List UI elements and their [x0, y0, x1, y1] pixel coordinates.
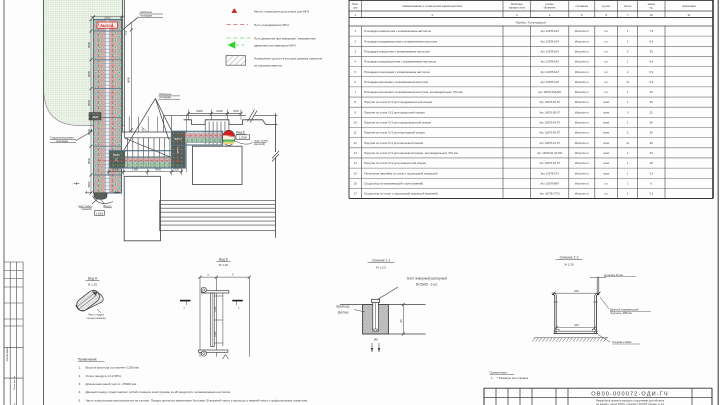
svg-text:3.: 3.: [79, 382, 82, 386]
svg-text:Поручни из стали Ст3 для предп: Поручни из стали Ст3 для предповоротной …: [364, 121, 431, 125]
svg-text:Сход/съезд из стали с порошков: Сход/съезд из стали с порошковой покраск…: [364, 192, 438, 196]
svg-text:примечание: примечание: [682, 5, 697, 8]
svg-text:(Бетон): (Бетон): [338, 311, 349, 315]
svg-text:Примечания:: Примечания:: [78, 357, 97, 361]
svg-text:Вид А: Вид А: [104, 204, 112, 208]
svg-text:Тактильная наклейка из стали с: Тактильная наклейка из стали с порошково…: [364, 171, 438, 175]
svg-text:площадки: площадки: [159, 96, 172, 99]
svg-text:комп: комп: [603, 111, 609, 114]
svg-text:движения при эвакуации МГН: движения при эвакуации МГН: [254, 43, 296, 47]
svg-text:Пози-: Пози-: [352, 3, 359, 6]
svg-text:М 1:2,5: М 1:2,5: [376, 265, 386, 269]
svg-text:площадка: площадка: [140, 14, 153, 17]
svg-text:поставщик: поставщик: [576, 5, 589, 8]
svg-text:Часть конструкции располагаетс: Часть конструкции располагается на склон…: [86, 398, 309, 402]
svg-text:1000*: 1000*: [214, 306, 217, 312]
svg-text:В/15х65 - 3 шт.: В/15х65 - 3 шт.: [416, 283, 438, 287]
svg-text:Согласовано: Согласовано: [6, 346, 9, 361]
svg-text:11: 11: [688, 13, 691, 17]
svg-text:ед.изм.: ед.изм.: [602, 5, 611, 8]
svg-text:комп: комп: [603, 172, 609, 175]
svg-text:* Размеры для справок.: * Размеры для справок.: [497, 376, 529, 380]
svg-text:Часть схода/о: Часть схода/о: [88, 314, 105, 317]
svg-text:Площадка предповоротная с алюм: Площадка предповоротная с алюминиевым на…: [364, 60, 436, 64]
svg-text:шт.: шт.: [604, 91, 608, 94]
svg-text:парового поля: парового поля: [509, 7, 526, 10]
svg-text:Вид Б: Вид Б: [236, 130, 244, 134]
svg-text:Наименование и техническая хар: Наименование и техническая характеристик…: [402, 4, 462, 8]
svg-text:комп: комп: [603, 132, 609, 135]
svg-text:не рассматривается: не рассматривается: [254, 63, 283, 67]
svg-text:Площадка переходная с алюминие: Площадка переходная с алюминиевым настил…: [364, 70, 430, 74]
svg-text:Поручни из стали Ст3 для перех: Поручни из стали Ст3 для переходной секц…: [364, 131, 425, 135]
svg-text:Высота крыльца составляет 1100: Высота крыльца составляет 1100 мм.: [86, 366, 140, 370]
svg-text:Поручни из стали Ст3 для повор: Поручни из стали Ст3 для поворотной секц…: [364, 110, 425, 114]
svg-text:5400: 5400: [196, 109, 203, 113]
svg-text:ВЫХОД: ВЫХОД: [100, 24, 114, 28]
svg-text:Поручни из стали Ст3 для разво: Поручни из стали Ст3 для разворотной сек…: [364, 161, 426, 165]
svg-text:Площадка предразворотная с алю: Площадка предразворотная с алюминиевым н…: [364, 39, 437, 43]
svg-text:Болт анкерный распорный: Болт анкерный распорный: [407, 277, 447, 281]
svg-text:комп: комп: [603, 101, 609, 104]
svg-text:1000*: 1000*: [214, 331, 217, 337]
svg-text:Поручни из стали Ст3 для накло: Поручни из стали Ст3 для наклонной секци…: [364, 151, 458, 155]
svg-text:2.: 2.: [79, 374, 82, 378]
svg-text:Примечание:: Примечание:: [490, 371, 508, 375]
svg-text:Прибор: "Конструкции": Прибор: "Конструкции": [516, 21, 547, 25]
svg-text:масса: масса: [648, 3, 656, 6]
svg-text:Гидроизоляционная: Гидроизоляционная: [50, 137, 74, 140]
svg-text:5.: 5.: [79, 398, 82, 402]
svg-text:Ø8: Ø8: [374, 338, 378, 342]
svg-text:Площадка наклонная с алюминиев: Площадка наклонная с алюминиевым настило…: [364, 80, 428, 84]
svg-text:500: 500: [233, 109, 238, 113]
svg-text:Путь передвижения МГН: Путь передвижения МГН: [254, 23, 289, 27]
svg-text:Места, помещения доступные для: Места, помещения доступные для МГН: [254, 10, 309, 14]
svg-text:сход / съезд: сход / съезд: [254, 140, 269, 143]
svg-text:1:2500: 1:2500: [96, 212, 104, 215]
svg-text:Помещения, доступ в которые да: Помещения, доступ в которые данным проек…: [254, 57, 322, 61]
svg-text:кол-во: кол-во: [624, 5, 632, 8]
svg-text:комп: комп: [603, 152, 609, 155]
svg-text:Величина: Величина: [511, 3, 523, 6]
svg-text:ед.: ед.: [650, 7, 654, 10]
svg-text:ПН8: ПН8: [92, 115, 98, 119]
svg-text:шт.: шт.: [604, 81, 608, 84]
svg-text:обозначен.: обозначен.: [544, 7, 557, 10]
svg-text:Поручни из стали Ст3 для предр: Поручни из стали Ст3 для предразворотной…: [364, 100, 433, 104]
svg-text:Путь движения при эвакуации, н: Путь движения при эвакуации, направление: [254, 36, 316, 40]
svg-text:М 1:30: М 1:30: [564, 262, 574, 266]
svg-text:(нижний): (нижний): [82, 208, 92, 211]
svg-text:Сечение 1-1: Сечение 1-1: [372, 259, 391, 263]
svg-text:Площадка поворотная с алюминие: Площадка поворотная с алюминиевым настил…: [364, 49, 430, 53]
svg-text:М 1:25: М 1:25: [88, 283, 98, 287]
svg-text:шт.: шт.: [604, 193, 608, 196]
svg-text:4.: 4.: [79, 390, 82, 394]
svg-text:прокладка: прокладка: [56, 140, 69, 143]
svg-text:1.: 1.: [79, 366, 82, 370]
svg-text:ция: ция: [353, 7, 358, 10]
svg-text:Крыльцо: Крыльцо: [336, 305, 349, 309]
svg-text:шт.: шт.: [604, 61, 608, 64]
svg-text:1.: 1.: [491, 376, 494, 380]
svg-text:комп: комп: [603, 142, 609, 145]
svg-text:шт.: шт.: [604, 40, 608, 43]
svg-text:Сечение 2-2: Сечение 2-2: [560, 256, 579, 260]
svg-text:условн.: условн.: [545, 3, 554, 6]
svg-text:шт.: шт.: [604, 71, 608, 74]
svg-text:шт.: шт.: [604, 30, 608, 33]
svg-text:съезда (нижняя): съезда (нижняя): [87, 317, 106, 320]
svg-text:Поручни из стали Ст3 для накло: Поручни из стали Ст3 для наклонной секци…: [364, 141, 424, 145]
svg-text:Уклон пандуса 1:12 (8%).: Уклон пандуса 1:12 (8%).: [86, 374, 122, 378]
svg-text:10: 10: [650, 13, 654, 17]
svg-text:ОВ00-000072-ОДИ-ГЧ: ОВ00-000072-ОДИ-ГЧ: [591, 391, 669, 397]
svg-text:ВМУ2: ВМУ2: [113, 154, 120, 157]
svg-text:(верхний): (верхний): [254, 143, 265, 146]
svg-text:сход / съезд: сход / съезд: [78, 205, 92, 208]
svg-text:2560: 2560: [104, 15, 111, 19]
svg-text:П×3: П×3: [125, 30, 128, 35]
svg-text:комп: комп: [603, 162, 609, 165]
svg-text:Вид А: Вид А: [88, 277, 98, 281]
svg-text:Площадка разворотная с алюмини: Площадка разворотная с алюминиевым насти…: [364, 29, 431, 33]
svg-text:1195: 1195: [216, 109, 223, 113]
svg-text:Данный пандус представляет соб: Данный пандус представляет собой сложную…: [86, 390, 232, 394]
svg-text:комп: комп: [603, 122, 609, 125]
svg-text:М 1:20: М 1:20: [219, 263, 229, 267]
svg-text:шт.: шт.: [604, 50, 608, 53]
svg-text:Площадка наклонная с алюминиев: Площадка наклонная с алюминиевым настило…: [364, 90, 463, 94]
svg-text:Длина наклонной части - 25300: Длина наклонной части - 25300 мм.: [86, 382, 138, 386]
svg-text:Сход/съезд из нержавеющей стал: Сход/съезд из нержавеющей стали (нижний): [364, 181, 423, 185]
svg-text:шт.: шт.: [604, 182, 608, 185]
svg-text:Вид Б: Вид Б: [219, 258, 228, 262]
